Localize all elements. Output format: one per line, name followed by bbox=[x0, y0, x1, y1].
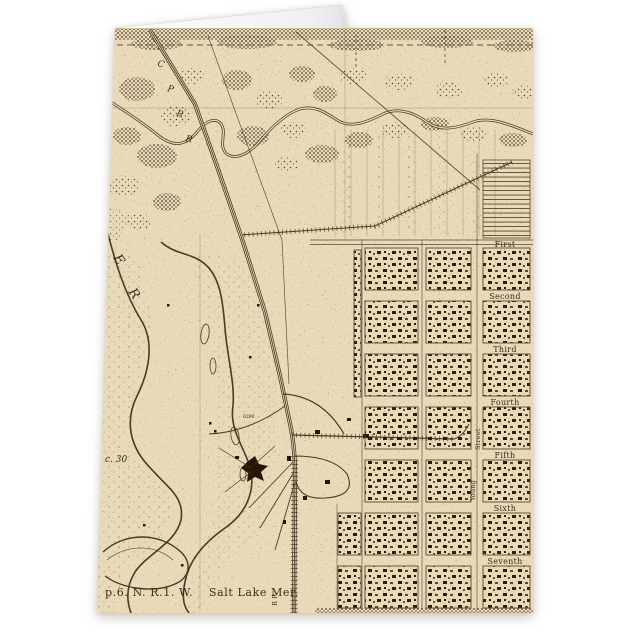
city-blocks bbox=[338, 248, 530, 608]
folded-card: First Second Third Fourth Fifth Sixth Se… bbox=[97, 4, 533, 613]
meridian-label: Salt Lake Mer. bbox=[209, 586, 299, 599]
street-label-third: Third bbox=[493, 345, 517, 354]
section-label: c. 30 bbox=[105, 455, 127, 465]
card-svg: First Second Third Fourth Fifth Sixth Se… bbox=[97, 4, 533, 613]
township-label: p.6. N. R.1. W. bbox=[105, 586, 193, 599]
street-label-fourth: Fourth bbox=[490, 398, 519, 407]
street-label-first: First bbox=[495, 240, 516, 249]
street-label-fifth: Fifth bbox=[495, 451, 516, 460]
street-label-street: Street bbox=[474, 428, 482, 450]
card-back-panel bbox=[115, 5, 346, 28]
greeting-card-mockup: First Second Third Fourth Fifth Sixth Se… bbox=[0, 0, 644, 644]
map-front: First Second Third Fourth Fifth Sixth Se… bbox=[97, 28, 533, 613]
strip-block bbox=[483, 160, 530, 238]
street-label-second: Second bbox=[489, 292, 521, 301]
elevation-label: 6290 bbox=[243, 414, 255, 420]
street-label-sixth: Sixth bbox=[494, 504, 516, 513]
street-label-young: Young bbox=[469, 480, 477, 502]
street-label-seventh: Seventh bbox=[487, 557, 522, 566]
